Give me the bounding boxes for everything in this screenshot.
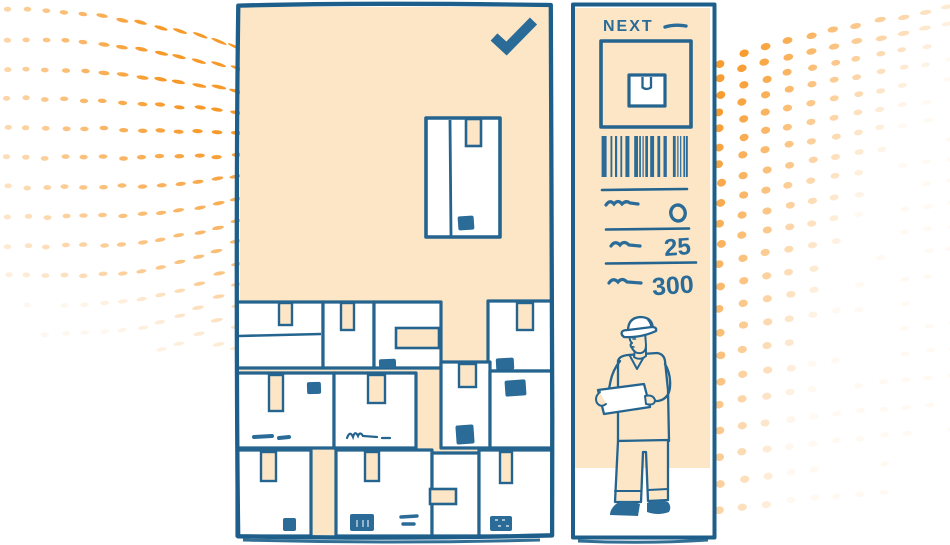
svg-text:300: 300 bbox=[651, 271, 695, 302]
svg-text:25: 25 bbox=[663, 233, 692, 262]
svg-text:NEXT: NEXT bbox=[603, 18, 654, 35]
